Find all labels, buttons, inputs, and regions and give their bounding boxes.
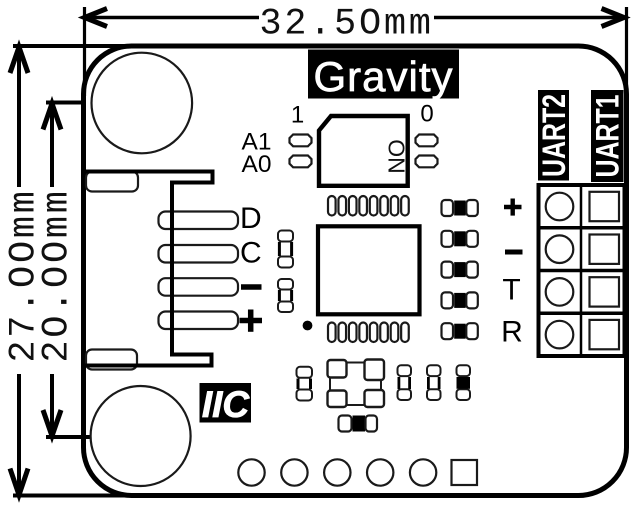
svg-text:A0: A0 (242, 151, 272, 178)
svg-text:T: T (502, 274, 520, 307)
svg-text:C: C (240, 237, 262, 270)
svg-text:1: 1 (291, 102, 304, 129)
svg-text:UART2: UART2 (536, 94, 572, 177)
svg-text:2O.OOmm: 2O.OOmm (37, 188, 79, 362)
svg-text:D: D (240, 202, 262, 235)
svg-text:Gravity: Gravity (313, 53, 453, 100)
svg-text:IIC: IIC (202, 384, 251, 425)
svg-text:32.5Omm: 32.5Omm (259, 4, 433, 46)
svg-text:0: 0 (420, 101, 433, 128)
svg-text:ON: ON (384, 139, 410, 174)
svg-text:R: R (501, 316, 523, 349)
svg-text:UART1: UART1 (590, 95, 626, 178)
